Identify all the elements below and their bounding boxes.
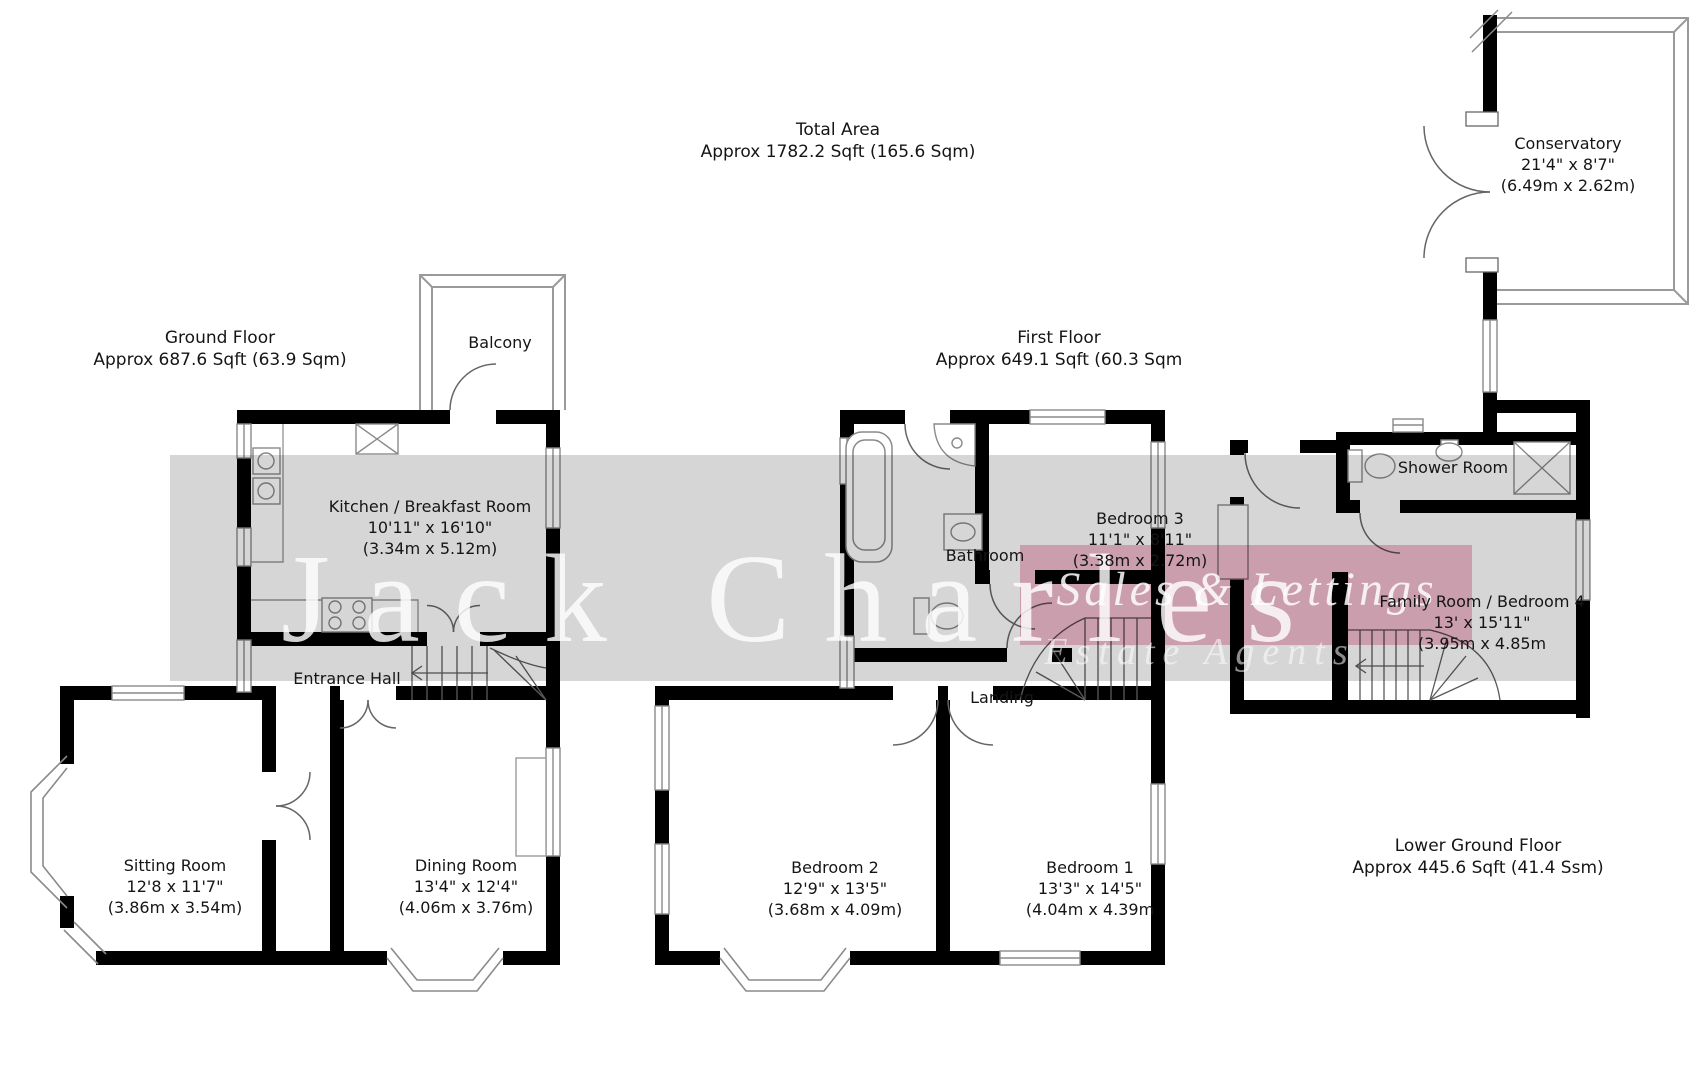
bedroom2-name: Bedroom 2 [768,857,903,878]
bedroom1-dims: 13'3" x 14'5" [1026,878,1154,899]
bathtub-icon [846,432,892,562]
dining-inset [516,758,546,856]
conservatory-dims: 21'4" x 8'7" [1501,154,1636,175]
bedroom1-label: Bedroom 1 13'3" x 14'5" (4.04m x 4.39m [1026,857,1154,920]
toilet-icon [914,598,963,634]
kitchen-metric: (3.34m x 5.12m) [329,538,532,559]
kitchen-name: Kitchen / Breakfast Room [329,496,532,517]
door-hinge-block [1466,112,1498,126]
dining-room-dims: 13'4" x 12'4" [399,876,534,897]
entrance-hall-name: Entrance Hall [293,668,401,689]
bedroom3-label: Bedroom 3 11'1" x 8'11" (3.38m x 2.72m) [1073,508,1208,571]
lower-ground-floor-name: Lower Ground Floor [1352,835,1603,857]
first-floor-name: First Floor [936,327,1183,349]
kitchen-sink-icon [253,448,280,504]
dining-bay-window [387,948,503,991]
sitting-bay-window [31,756,67,908]
first-floor-title: First Floor Approx 649.1 Sqft (60.3 Sqm [936,327,1183,371]
bedroom2-bay-window [720,948,850,991]
landing-label: Landing [970,687,1034,708]
shower-tray-icon [1514,442,1570,494]
balcony-door-gap [450,410,496,424]
lower-ground-floor-title: Lower Ground Floor Approx 445.6 Sqft (41… [1352,835,1603,879]
total-area-line2: Approx 1782.2 Sqft (165.6 Sqm) [701,141,976,163]
family-room-dims: 13' x 15'11" [1379,612,1584,633]
entrance-hall-label: Entrance Hall [293,668,401,689]
bedroom3-metric: (3.38m x 2.72m) [1073,550,1208,571]
bathroom-name: Bathroom [946,545,1025,566]
bathroom-label: Bathroom [946,545,1025,566]
conservatory-door-arcs [1424,126,1490,258]
sitting-room-metric: (3.86m x 3.54m) [108,897,243,918]
sitting-room-dims: 12'8 x 11'7" [108,876,243,897]
dining-room-metric: (4.06m x 3.76m) [399,897,534,918]
corner-sink-icon [934,424,975,466]
sitting-room-name: Sitting Room [108,855,243,876]
landing-name: Landing [970,687,1034,708]
total-area-line1: Total Area [701,119,976,141]
shower-room-name: Shower Room [1398,457,1508,478]
dining-room-label: Dining Room 13'4" x 12'4" (4.06m x 3.76m… [399,855,534,918]
sitting-room-label: Sitting Room 12'8 x 11'7" (3.86m x 3.54m… [108,855,243,918]
bedroom1-name: Bedroom 1 [1026,857,1154,878]
lower-left-window [1483,320,1497,392]
skylight-icon [356,424,398,454]
kitchen-label: Kitchen / Breakfast Room 10'11" x 16'10"… [329,496,532,559]
conservatory-name: Conservatory [1501,133,1636,154]
family-room-metric: (3.95m x 4.85m [1379,633,1584,654]
bedroom3-name: Bedroom 3 [1073,508,1208,529]
conservatory-metric: (6.49m x 2.62m) [1501,175,1636,196]
total-area-title: Total Area Approx 1782.2 Sqft (165.6 Sqm… [701,119,976,163]
shower-room-label: Shower Room [1398,457,1508,478]
ground-floor-area: Approx 687.6 Sqft (63.9 Sqm) [93,349,346,371]
ground-floor-name: Ground Floor [93,327,346,349]
first-floor-area: Approx 649.1 Sqft (60.3 Sqm [936,349,1183,371]
door-hinge-block [1466,258,1498,272]
family-room-label: Family Room / Bedroom 4 13' x 15'11" (3.… [1379,591,1584,654]
kitchen-dims: 10'11" x 16'10" [329,517,532,538]
balcony-label: Balcony [468,332,531,353]
toilet-icon [1348,450,1395,482]
conservatory-label: Conservatory 21'4" x 8'7" (6.49m x 2.62m… [1501,133,1636,196]
ground-floor-title: Ground Floor Approx 687.6 Sqft (63.9 Sqm… [93,327,346,371]
bedroom2-label: Bedroom 2 12'9" x 13'5" (3.68m x 4.09m) [768,857,903,920]
bedroom2-dims: 12'9" x 13'5" [768,878,903,899]
family-room-name: Family Room / Bedroom 4 [1379,591,1584,612]
lower-ground-floor-area: Approx 445.6 Sqft (41.4 Ssm) [1352,857,1603,879]
bedroom1-metric: (4.04m x 4.39m [1026,899,1154,920]
bedroom3-dims: 11'1" x 8'11" [1073,529,1208,550]
bedroom2-metric: (3.68m x 4.09m) [768,899,903,920]
floorplan-page: Jack Charles Estate Agents Sales & Letti… [0,0,1698,1080]
dining-room-name: Dining Room [399,855,534,876]
balcony-name: Balcony [468,332,531,353]
stove-icon [322,598,372,632]
